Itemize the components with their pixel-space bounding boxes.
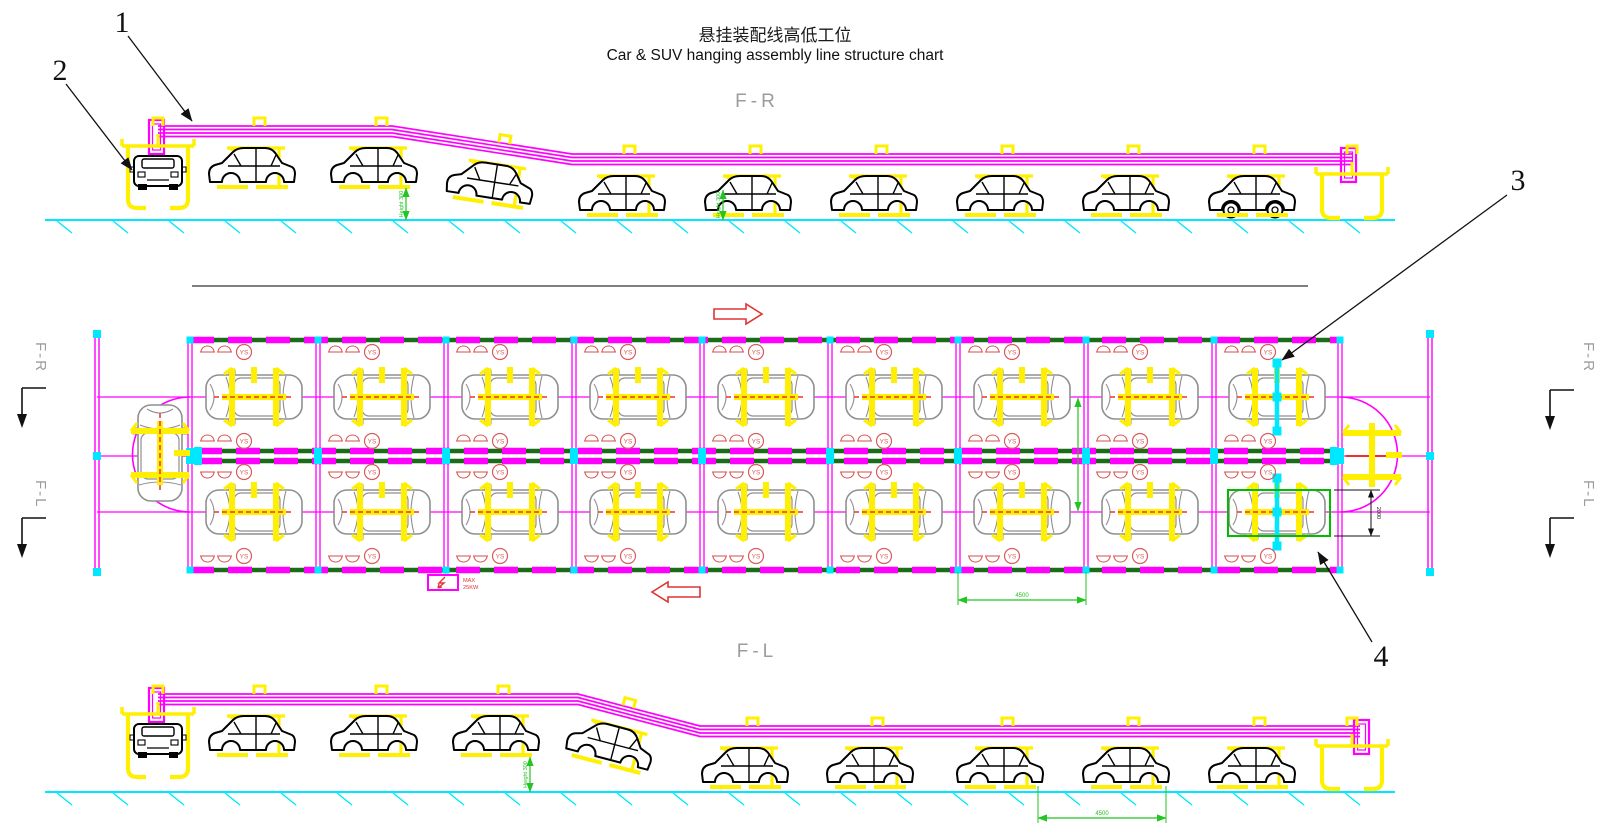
ys-marker: YS bbox=[456, 549, 508, 564]
dimension-text: 4500 bbox=[1015, 593, 1029, 599]
hanger-sill bbox=[453, 197, 523, 208]
ys-marker: YS bbox=[840, 465, 892, 480]
hanging-station bbox=[1083, 718, 1169, 787]
plan-view-car bbox=[1102, 482, 1198, 541]
ys-marker: YS bbox=[1096, 434, 1148, 449]
ys-label: YS bbox=[1136, 469, 1145, 476]
c-frame-station bbox=[122, 118, 194, 208]
ys-label: YS bbox=[368, 469, 377, 476]
rail-node bbox=[1210, 448, 1218, 464]
car-side-body bbox=[702, 748, 788, 782]
ys-marker: YS bbox=[200, 549, 252, 564]
ys-marker: YS bbox=[328, 465, 380, 480]
ys-marker: YS bbox=[840, 549, 892, 564]
hanging-station bbox=[1083, 146, 1169, 215]
plan-view-car bbox=[462, 367, 558, 426]
ys-label: YS bbox=[496, 553, 505, 560]
trolley-hook-icon bbox=[1002, 718, 1013, 726]
hanging-station bbox=[1209, 718, 1295, 787]
rail-node bbox=[1426, 330, 1434, 338]
callout-leader bbox=[128, 36, 192, 121]
hanging-station bbox=[331, 686, 417, 755]
ys-marker: YS bbox=[1096, 465, 1148, 480]
ys-marker: YS bbox=[1224, 465, 1276, 480]
rail-node bbox=[93, 568, 101, 576]
rail-node bbox=[698, 448, 706, 464]
section-arrow-icon bbox=[17, 414, 27, 428]
car-side-body bbox=[209, 716, 295, 750]
plan-view-car bbox=[334, 367, 430, 426]
rail-node bbox=[1336, 448, 1344, 464]
ground-line bbox=[45, 220, 1395, 233]
ys-marker: YS bbox=[328, 549, 380, 564]
trolley-hook-icon bbox=[624, 146, 635, 154]
ground-line bbox=[45, 792, 1395, 805]
trolley-hook-icon bbox=[153, 118, 163, 146]
ys-marker: YS bbox=[328, 434, 380, 449]
plan-view-car bbox=[846, 482, 942, 541]
ys-label: YS bbox=[1264, 469, 1273, 476]
plan-view-car bbox=[590, 482, 686, 541]
ys-label: YS bbox=[368, 438, 377, 445]
c-frame-station bbox=[122, 686, 194, 777]
title-en: Car & SUV hanging assembly line structur… bbox=[607, 47, 945, 64]
rail-node bbox=[315, 567, 322, 574]
ys-label: YS bbox=[624, 469, 633, 476]
plan-view-car bbox=[590, 367, 686, 426]
ys-marker: YS bbox=[1096, 549, 1148, 564]
plan-view-car bbox=[846, 367, 942, 426]
rail-node bbox=[443, 337, 450, 344]
ys-label: YS bbox=[240, 469, 249, 476]
hanging-station bbox=[957, 718, 1043, 787]
ys-marker: YS bbox=[968, 345, 1020, 360]
rail-node bbox=[827, 337, 834, 344]
trolley-hook-icon bbox=[1347, 718, 1357, 746]
plan-view-car bbox=[1102, 367, 1198, 426]
ys-marker: YS bbox=[712, 345, 764, 360]
car-front-body bbox=[130, 724, 186, 758]
ys-label: YS bbox=[752, 349, 761, 356]
elevation-top-layer: Height 300Height 300 bbox=[45, 118, 1395, 233]
car-side-body bbox=[453, 716, 539, 750]
rail-node bbox=[954, 448, 962, 464]
section-marker-right-top-label: F-R bbox=[1580, 342, 1597, 373]
section-marker-left-top-label: F-R bbox=[32, 342, 49, 373]
c-frame-arms bbox=[1322, 174, 1382, 218]
ys-label: YS bbox=[1264, 349, 1273, 356]
ys-marker: YS bbox=[584, 465, 636, 480]
car-side-body bbox=[957, 748, 1043, 782]
trolley-hook-icon bbox=[254, 118, 265, 126]
trolley-hook-icon bbox=[153, 686, 163, 714]
rail-node bbox=[827, 567, 834, 574]
ys-marker: YS bbox=[968, 434, 1020, 449]
ys-label: YS bbox=[624, 349, 633, 356]
section-cut-marker bbox=[1545, 518, 1574, 558]
rail-node bbox=[1337, 567, 1344, 574]
rail-node bbox=[93, 452, 101, 460]
ys-label: YS bbox=[1136, 438, 1145, 445]
ys-marker: YS bbox=[1224, 345, 1276, 360]
car-side-body bbox=[831, 176, 917, 210]
ys-marker: YS bbox=[840, 434, 892, 449]
hanging-station bbox=[209, 118, 295, 187]
plan-view-car bbox=[334, 482, 430, 541]
plan-view-car bbox=[462, 482, 558, 541]
rail-node bbox=[570, 448, 578, 464]
power-label-line2: 25KW bbox=[463, 585, 479, 591]
trolley-hook-icon bbox=[876, 146, 887, 154]
dimension-text: Height 300 bbox=[399, 191, 405, 218]
trolley-hook-icon bbox=[1002, 146, 1013, 154]
rail-node bbox=[571, 567, 578, 574]
car-side-body bbox=[827, 748, 913, 782]
ys-label: YS bbox=[1008, 469, 1017, 476]
ys-marker: YS bbox=[712, 549, 764, 564]
trolley-hook-icon bbox=[1254, 146, 1265, 154]
dimension-text: Height 300 bbox=[523, 761, 529, 788]
rail-node bbox=[315, 337, 322, 344]
ys-marker: YS bbox=[456, 465, 508, 480]
ys-label: YS bbox=[1008, 553, 1017, 560]
ys-marker: YS bbox=[712, 465, 764, 480]
ys-marker: YS bbox=[840, 345, 892, 360]
view-label-bottom: F-L bbox=[737, 641, 778, 662]
rail-node bbox=[826, 448, 834, 464]
ys-marker: YS bbox=[456, 345, 508, 360]
plan-view-car bbox=[718, 367, 814, 426]
dimension-vertical: Height 300 bbox=[399, 188, 406, 220]
rail-node bbox=[93, 330, 101, 338]
ys-marker: YS bbox=[968, 465, 1020, 480]
section-arrow-icon bbox=[17, 544, 27, 558]
ys-marker: YS bbox=[584, 434, 636, 449]
dimension-text: Height 300 bbox=[716, 192, 722, 219]
hanging-station bbox=[453, 686, 539, 755]
ys-label: YS bbox=[240, 438, 249, 445]
rail-cap bbox=[194, 447, 202, 465]
ys-label: YS bbox=[368, 553, 377, 560]
callout-4: 4 bbox=[1374, 640, 1389, 673]
car-side-body bbox=[1209, 176, 1295, 218]
view-label-top: F-R bbox=[735, 91, 779, 112]
dimension-horizontal: 4500 bbox=[958, 572, 1086, 605]
rail-node bbox=[442, 448, 450, 464]
callout-2: 2 bbox=[53, 54, 68, 87]
ys-marker: YS bbox=[200, 434, 252, 449]
assembly-line-drawing: Height 300Height 300 YSYSYSYSYSYSYSYSYSY… bbox=[0, 0, 1600, 833]
title-zh: 悬挂装配线高低工位 bbox=[699, 26, 852, 45]
drawing-canvas: Height 300Height 300 YSYSYSYSYSYSYSYSYSY… bbox=[0, 0, 1600, 833]
ys-marker: YS bbox=[1096, 345, 1148, 360]
ys-marker: YS bbox=[200, 465, 252, 480]
trolley-hook-icon bbox=[376, 686, 387, 694]
rail-node bbox=[1083, 337, 1090, 344]
plan-view-car bbox=[974, 482, 1070, 541]
ys-label: YS bbox=[240, 553, 249, 560]
car-side-body bbox=[209, 148, 295, 182]
callout-1: 1 bbox=[115, 6, 130, 39]
rail-node bbox=[1337, 337, 1344, 344]
ys-label: YS bbox=[880, 469, 889, 476]
ys-label: YS bbox=[1136, 349, 1145, 356]
ys-marker: YS bbox=[456, 434, 508, 449]
ys-label: YS bbox=[1008, 349, 1017, 356]
trolley-hook-icon bbox=[498, 686, 509, 694]
hanging-station bbox=[831, 146, 917, 215]
station-lift-bar bbox=[1273, 359, 1282, 436]
flow-arrow-right-icon bbox=[714, 304, 762, 324]
ys-label: YS bbox=[240, 349, 249, 356]
trolley-hook-icon bbox=[747, 718, 758, 726]
car-front-body bbox=[130, 156, 186, 190]
dimension-vertical: Height 300 bbox=[523, 757, 530, 792]
trolley-hook-icon bbox=[254, 686, 265, 694]
hanging-station bbox=[702, 718, 788, 787]
plan-view-car bbox=[131, 405, 190, 501]
ys-label: YS bbox=[880, 553, 889, 560]
ys-marker: YS bbox=[968, 549, 1020, 564]
hanging-station bbox=[209, 686, 295, 755]
ys-label: YS bbox=[368, 349, 377, 356]
trolley-hook-icon bbox=[376, 118, 387, 126]
power-label-line1: MAX bbox=[463, 578, 475, 584]
ys-marker: YS bbox=[712, 434, 764, 449]
rail-node bbox=[187, 337, 194, 344]
section-arrow-icon bbox=[1545, 416, 1555, 430]
ys-label: YS bbox=[496, 349, 505, 356]
ys-marker: YS bbox=[328, 345, 380, 360]
rail-node bbox=[955, 337, 962, 344]
rail-node bbox=[187, 567, 194, 574]
c-frame-arms bbox=[1322, 746, 1382, 789]
section-marker-left-bottom-label: F-L bbox=[32, 480, 49, 509]
ys-marker: YS bbox=[1224, 434, 1276, 449]
ys-label: YS bbox=[496, 469, 505, 476]
plan-view-layer: YSYSYSYSYSYSYSYSYSYSYSYSYSYSYSYSYSYSYSYS… bbox=[93, 304, 1434, 605]
ys-label: YS bbox=[752, 469, 761, 476]
rail-node bbox=[443, 567, 450, 574]
trolley-hook-icon bbox=[872, 718, 883, 726]
ys-marker: YS bbox=[584, 345, 636, 360]
ys-label: YS bbox=[624, 553, 633, 560]
rail-node bbox=[314, 448, 322, 464]
ys-label: YS bbox=[880, 438, 889, 445]
rail-node bbox=[699, 337, 706, 344]
ys-label: YS bbox=[1136, 553, 1145, 560]
ys-marker: YS bbox=[200, 345, 252, 360]
hanging-station bbox=[957, 146, 1043, 215]
ys-label: YS bbox=[496, 438, 505, 445]
elevation-bottom-layer: Height 3004500 bbox=[45, 686, 1395, 823]
ys-label: YS bbox=[880, 349, 889, 356]
rail-node bbox=[1211, 337, 1218, 344]
section-marker-right-bottom-label: F-L bbox=[1580, 480, 1597, 509]
overhead-rail bbox=[158, 694, 1360, 737]
hanging-station bbox=[827, 718, 913, 787]
ys-marker: YS bbox=[1224, 549, 1276, 564]
rail-node bbox=[1211, 567, 1218, 574]
trolley-hook-icon bbox=[1128, 718, 1139, 726]
rail-node bbox=[1082, 448, 1090, 464]
car-side-body bbox=[331, 148, 417, 182]
trolley-hook-icon bbox=[1254, 718, 1265, 726]
dimension-text: 2000 bbox=[1375, 507, 1381, 519]
station-lift-bar bbox=[1273, 474, 1282, 551]
hanging-station bbox=[564, 686, 665, 775]
callout-3: 3 bbox=[1511, 164, 1526, 197]
rail-node bbox=[1426, 568, 1434, 576]
hanging-station bbox=[579, 146, 665, 215]
trolley-hook-icon bbox=[1128, 146, 1139, 154]
ys-marker: YS bbox=[584, 549, 636, 564]
car-side-body bbox=[1083, 748, 1169, 782]
plan-view-car bbox=[718, 482, 814, 541]
section-arrow-icon bbox=[1545, 544, 1555, 558]
callout-leader bbox=[66, 84, 132, 170]
car-side-body bbox=[957, 176, 1043, 210]
trolley-hook-icon bbox=[750, 146, 761, 154]
ys-label: YS bbox=[1264, 438, 1273, 445]
section-cut-marker bbox=[1545, 390, 1574, 430]
car-side-body bbox=[1083, 176, 1169, 210]
section-cut-marker bbox=[17, 388, 46, 428]
ys-label: YS bbox=[752, 438, 761, 445]
section-cut-marker bbox=[17, 518, 46, 558]
rail-node bbox=[571, 337, 578, 344]
car-side-body bbox=[1209, 748, 1295, 782]
ys-label: YS bbox=[752, 553, 761, 560]
flow-arrow-left-icon bbox=[652, 582, 700, 602]
rail-node bbox=[699, 567, 706, 574]
rail-node bbox=[1426, 452, 1434, 460]
ys-label: YS bbox=[1264, 553, 1273, 560]
plan-view-car bbox=[974, 367, 1070, 426]
car-side-body bbox=[579, 176, 665, 210]
plan-view-car bbox=[206, 482, 302, 541]
dimension-text: 4500 bbox=[1095, 811, 1109, 817]
car-side-body bbox=[331, 716, 417, 750]
ys-label: YS bbox=[1008, 438, 1017, 445]
plan-view-car bbox=[206, 367, 302, 426]
callout-leader bbox=[1318, 552, 1372, 642]
ys-label: YS bbox=[624, 438, 633, 445]
dimension-vertical: Height 300 bbox=[716, 190, 723, 220]
